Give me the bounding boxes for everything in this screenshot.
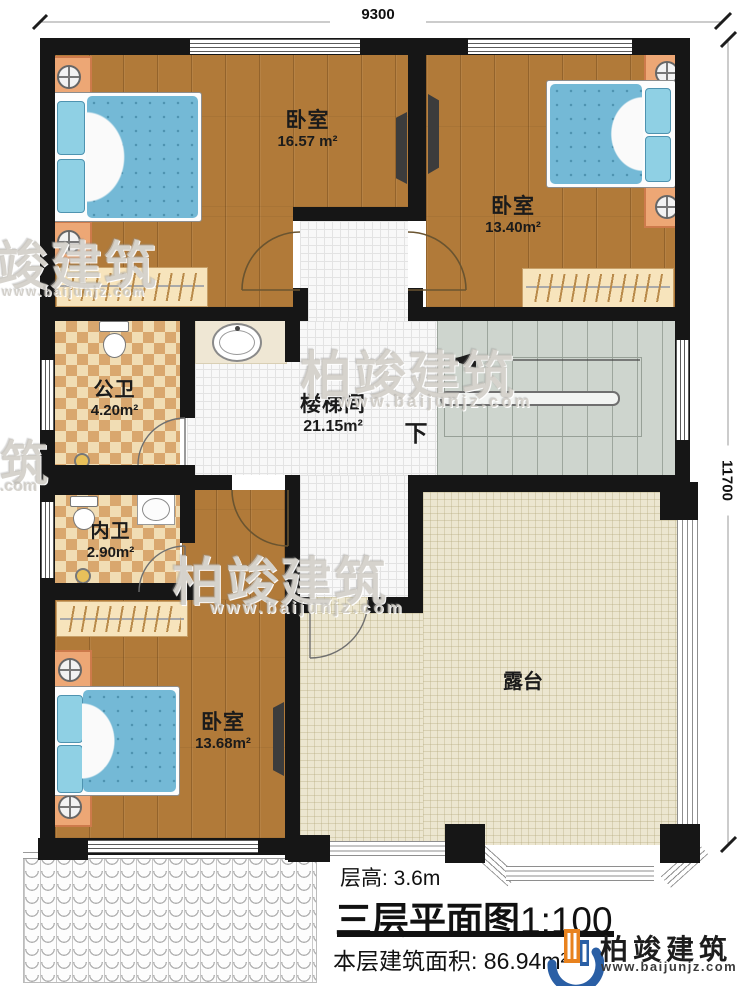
dimension-right-height: 11700	[719, 446, 736, 516]
stair-down-label: 下	[398, 420, 434, 448]
room-name: 卧室	[235, 108, 380, 133]
room-label-public-bathroom: 公卫 4.20m²	[62, 378, 167, 420]
room-name: 卧室	[448, 194, 578, 219]
room-area: 13.68m²	[158, 735, 288, 753]
room-area: 2.90m²	[58, 544, 163, 562]
room-name: 内卫	[58, 521, 163, 544]
room-label-bedroom-top-right: 卧室 13.40m²	[448, 194, 578, 237]
bath-terrace-door-arcs	[138, 418, 368, 658]
watermark-site: www.baijunjz.com	[210, 598, 405, 618]
room-label-bedroom-bottom: 卧室 13.68m²	[158, 710, 288, 753]
brand-logo: 柏竣建筑 www.baijunjz.com	[538, 920, 750, 986]
room-area: 16.57 m²	[235, 133, 380, 151]
room-label-bedroom-top-left: 卧室 16.57 m²	[235, 108, 380, 151]
room-area: 13.40m²	[448, 219, 578, 237]
floor-height-note: 层高: 3.6m	[340, 862, 440, 892]
floor-plan-canvas: 卧室 16.57 m² 卧室 13.40m² 公卫 4.20m² 内卫 2.90…	[0, 0, 750, 989]
room-label-inner-bathroom: 内卫 2.90m²	[58, 521, 163, 562]
dimension-top-width: 9300	[330, 6, 426, 23]
room-name: 卧室	[158, 710, 288, 735]
room-area: 4.20m²	[62, 402, 167, 420]
room-label-terrace: 露台	[468, 670, 578, 694]
room-area: 21.15m²	[268, 417, 398, 436]
watermark-site: www.baijunjz.com	[2, 284, 146, 299]
room-name: 公卫	[62, 378, 167, 402]
floor-area-note: 本层建筑面积: 86.94m²	[333, 942, 568, 976]
brand-logo-icon	[542, 924, 604, 986]
watermark-edge-site: .com	[0, 478, 37, 496]
watermark-site: www.baijunjz.com	[338, 392, 533, 412]
brand-website: www.baijunjz.com	[601, 959, 737, 974]
